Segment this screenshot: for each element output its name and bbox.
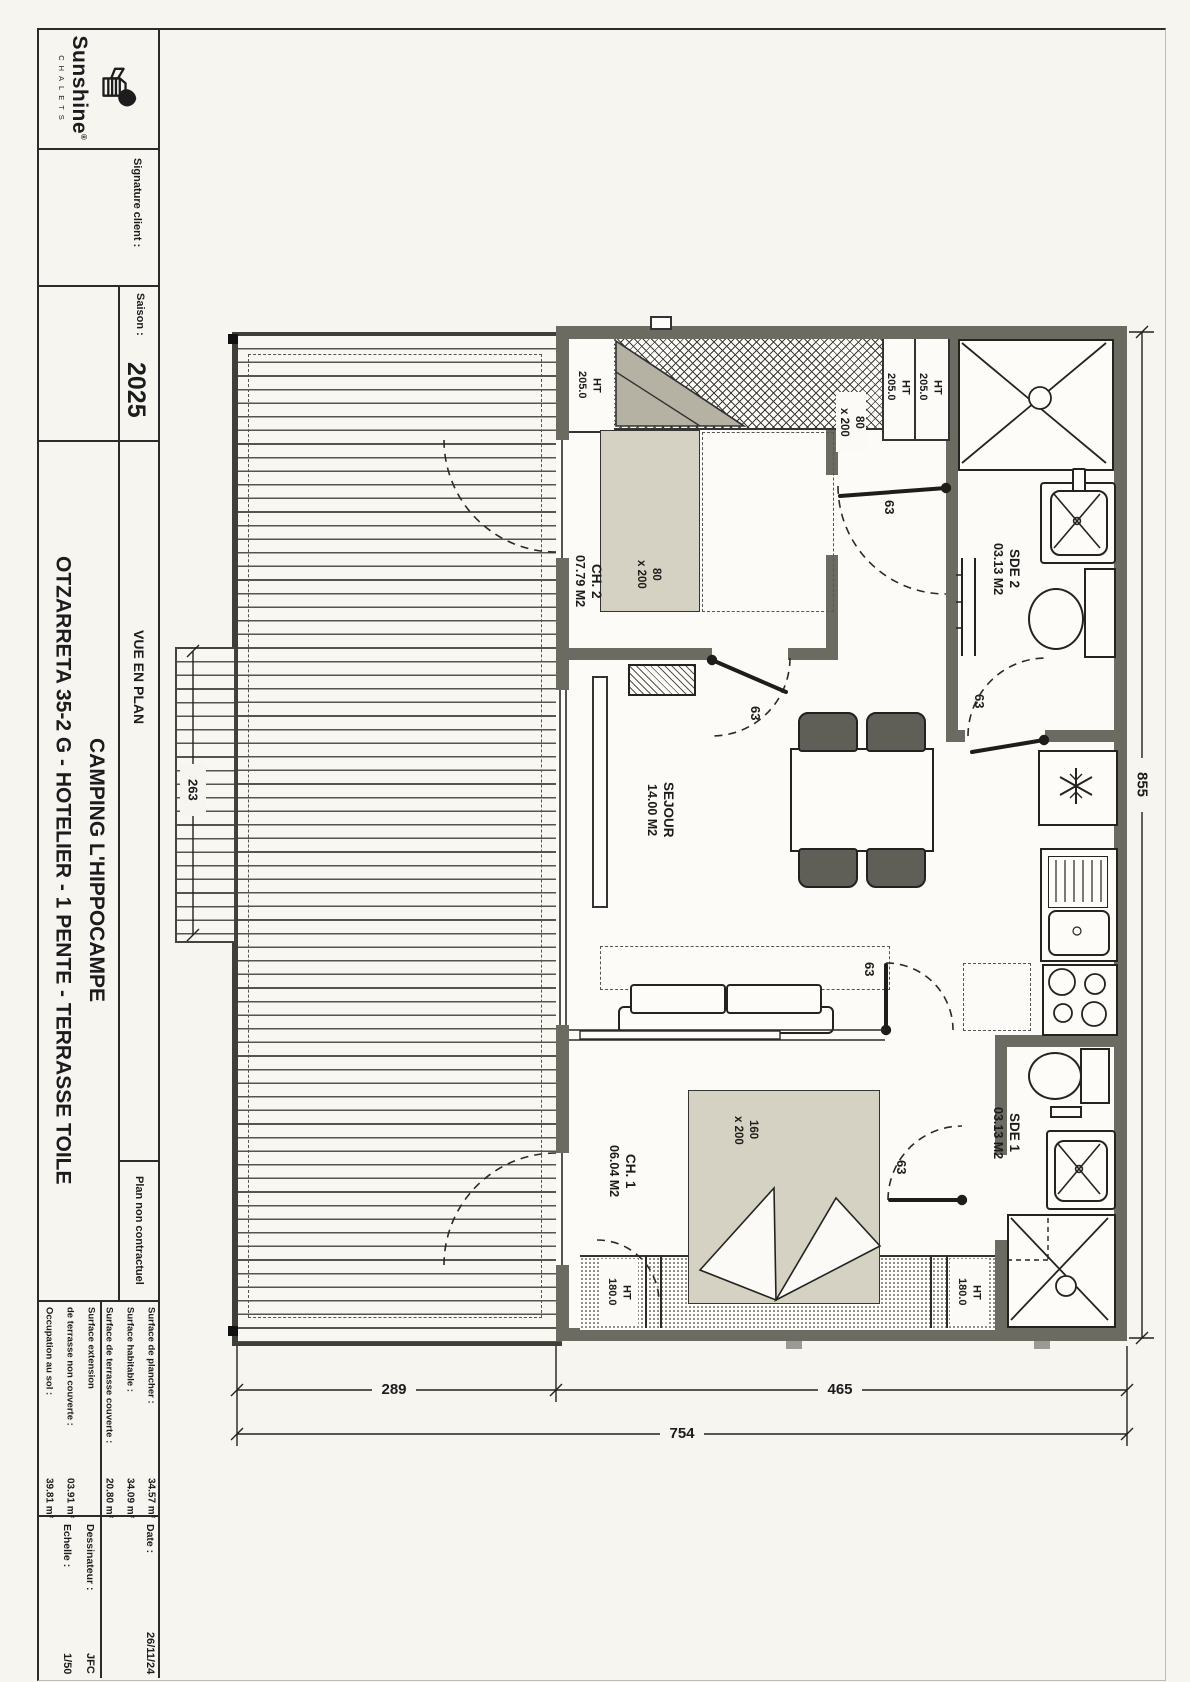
chair [798,848,858,888]
room-label-ch1: CH. 1 06.04 M2 [596,1128,638,1214]
meta-value: 26/11/24 [144,1632,156,1674]
partition-ch1-sde1 [995,1240,1007,1328]
closet-height-label: HT 205.0 [916,352,944,422]
meta-left-column: Dessinateur :JFC Echelle :1/50 [42,1519,102,1679]
sink-basin [1048,910,1110,956]
partition-ch2-sejour [569,648,712,660]
room-area: 14.00 M2 [644,768,660,852]
door-width-label: 63 [894,1160,909,1174]
surface-label: Surface extension [86,1307,97,1389]
surface-value: 34.57 m² [146,1478,157,1518]
saison-label: Saison : [134,293,146,336]
towel-radiator-sde2 [961,558,976,656]
surface-row: Surface habitable :34.09 m² [121,1307,139,1518]
stove [1042,964,1118,1036]
surface-value: 03.91 m² [65,1478,76,1518]
door-width-label: 63 [882,500,897,514]
room-label-ch2: CH. 2 07.79 M2 [564,538,604,624]
closet-height-label: HT 205.0 [574,352,604,418]
closet-height-label: HT 180.0 [950,1259,988,1325]
storage-divider [660,1255,662,1328]
dim-chalet-depth: 855 [1129,758,1155,812]
dim-terrace-extension: 263 [180,764,206,816]
bed2b-size-label: 80 x 200 [836,392,866,452]
meta-right-column: Date :26/11/24 [102,1519,162,1679]
project-title-line1: OTZARRETA 35-2 G - HOTELIER - 1 PENTE - … [46,440,80,1300]
bed-ch1 [688,1090,880,1304]
surface-label: Surface de terrasse couverte : [104,1307,115,1443]
bed-ch1-size-label: 160 x 200 [728,1098,762,1162]
project-title: OTZARRETA 35-2 G - HOTELIER - 1 PENTE - … [46,440,118,1300]
footing-mark [786,1341,802,1349]
fridge [1038,750,1118,826]
partition-sde2-kitchen [946,730,965,742]
surfaces-left-column: Surface extension de terrasse non couver… [42,1302,102,1523]
sliding-bay-panel [592,676,608,908]
registered-mark: ® [80,134,89,140]
chair [866,848,926,888]
terrace-post [228,334,238,344]
surface-value: 39.81 m² [44,1478,55,1518]
toilet-bowl-sde2 [1028,588,1084,650]
meta-label: Echelle : [61,1524,73,1567]
room-name: SDE 1 [1005,1098,1022,1168]
brand-subtitle: CHALETS [58,55,67,125]
titleblock-divider [39,148,158,150]
sofa-cushion [726,984,822,1014]
view-label-cell: VUE EN PLAN [120,440,158,1160]
watering-can-leaf-icon [93,65,139,111]
kitchen-clearance [963,963,1031,1031]
surfaces-right-column: Surface de plancher :34.57 m² Surface ha… [102,1302,162,1523]
surface-row: Surface extension [82,1307,100,1518]
bed-ch2-size-label: 80 x 200 [632,544,664,604]
meta-label: Dessinateur : [84,1524,96,1591]
brand-name: Sunshine® [68,36,92,141]
room-label-sde2: SDE 2 03.13 M2 [984,534,1022,604]
room-label-sejour: SEJOUR 14.00 M2 [630,768,676,852]
room-area: 06.04 M2 [606,1128,622,1214]
washbasin-sde1 [1054,1140,1108,1202]
towel-radiator-sde1 [1050,1106,1082,1118]
disclaimer-cell: Plan non contractuel [120,1162,158,1298]
glazed-bay-sejour [556,690,569,1025]
meta-row: Dessinateur :JFC [80,1524,100,1674]
glazed-door-ch2 [556,440,569,558]
surface-row: Surface de terrasse couverte :20.80 m² [100,1307,118,1518]
scanned-floor-plan-sheet: Sunshine® CHALETS Signature client : Sai… [0,0,1190,1682]
shower-sde1 [1007,1214,1116,1328]
surface-label: Surface de plancher : [146,1307,157,1404]
dim-terrace-width: 289 [372,1378,416,1400]
meta-value: JFC [84,1653,96,1674]
room-area: 07.79 M2 [572,538,588,624]
signature-client-label: Signature client : [131,158,143,247]
toilet-bowl-sde1 [1028,1052,1082,1100]
dining-table [790,748,934,852]
dim-chalet-width: 465 [818,1378,862,1400]
surface-row: Occupation au sol :39.81 m² [40,1307,58,1518]
room-area: 03.13 M2 [990,1098,1006,1168]
tap-sde2 [1072,468,1086,492]
project-title-line2: CAMPING L'HIPPOCAMPE [80,440,114,1300]
saison-value: 2025 [121,362,150,418]
dim-total-width: 754 [660,1422,704,1444]
storage-divider [946,1255,948,1328]
room-area: 03.13 M2 [990,534,1006,604]
meta-value: 1/50 [61,1653,73,1674]
toilet-tank-sde1 [1080,1048,1110,1104]
toilet-tank-sde2 [1084,568,1116,658]
meta-row: Date :26/11/24 [140,1524,160,1674]
heater-sejour [628,664,696,696]
room-name: CH. 1 [621,1128,638,1214]
sofa-cushion [630,984,726,1014]
view-label: VUE EN PLAN [131,630,147,1160]
closet-height-label: HT 205.0 [884,352,912,422]
washbasin-sde2 [1050,490,1108,556]
terrace-canopy-outline [248,354,542,1318]
room-name: SDE 2 [1005,534,1022,604]
room-name: CH. 2 [587,538,604,624]
brand-logo: Sunshine® CHALETS [42,32,154,144]
door-width-label: 63 [748,706,763,720]
partition-kitchen-sde1 [1002,1035,1114,1047]
closet-height-label: HT 180.0 [600,1259,638,1325]
sink-drainer [1048,856,1108,908]
door-width-label: 63 [972,694,987,708]
surface-value: 34.09 m² [125,1478,136,1518]
surface-row: de terrasse non couverte :03.91 m² [61,1307,79,1518]
titleblock-divider [39,285,158,287]
surface-label: Occupation au sol : [44,1307,55,1395]
surface-value: 20.80 m² [104,1478,115,1518]
surface-row: Surface de plancher :34.57 m² [142,1307,160,1518]
storage-divider [930,1255,932,1328]
bed-ch2-optional [702,432,834,612]
meta-row: Echelle :1/50 [57,1524,77,1674]
meta-label: Date : [144,1524,156,1553]
chair [798,712,858,752]
disclaimer: Plan non contractuel [133,1176,145,1285]
room-name: SEJOUR [659,768,676,852]
chair [866,712,926,752]
surface-label: Surface habitable : [125,1307,136,1392]
footing-mark [1034,1341,1050,1349]
glazed-door-ch1 [556,1153,569,1265]
shower-sde2 [958,339,1114,471]
door-width-label: 63 [862,962,877,976]
terrace-post [228,1326,238,1336]
room-label-sde1: SDE 1 03.13 M2 [984,1098,1022,1168]
partition-sde2-kitchen [1045,730,1114,742]
wall-tie [650,316,672,330]
surface-label: de terrasse non couverte : [65,1307,76,1426]
storage-divider [645,1255,647,1328]
